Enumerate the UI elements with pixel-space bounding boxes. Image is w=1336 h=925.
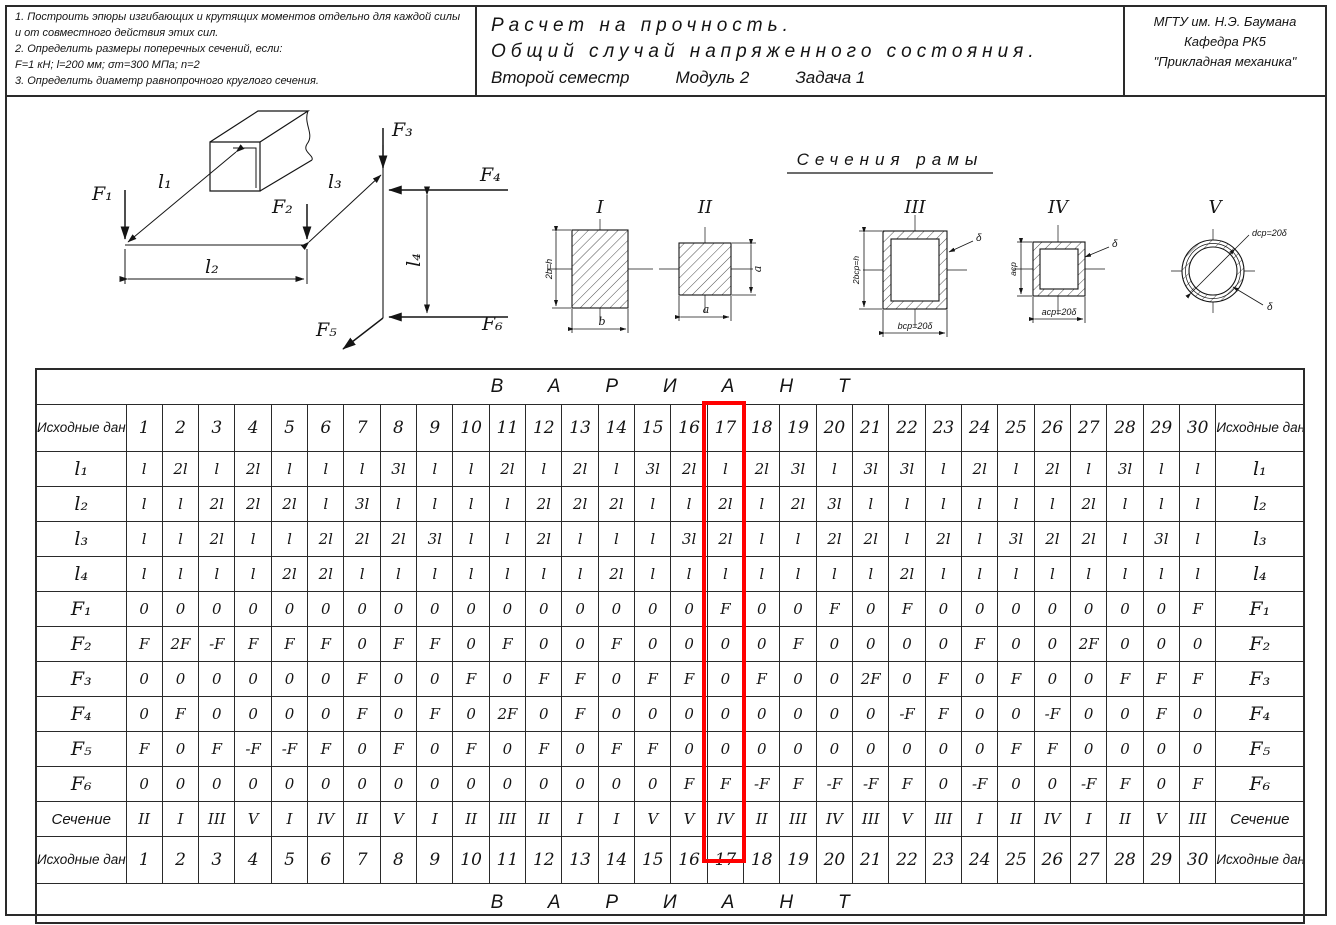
row-label: l₁: [36, 452, 126, 487]
value-cell: 0: [635, 767, 671, 802]
value-cell: I: [962, 802, 998, 837]
row-label: F₃: [36, 662, 126, 697]
value-cell: F: [744, 662, 780, 697]
task-number-label: Задача 1: [795, 68, 865, 88]
value-cell: l: [162, 487, 198, 522]
value-cell: 0: [962, 697, 998, 732]
value-cell: 0: [816, 627, 852, 662]
variant-number: 30: [1180, 837, 1216, 884]
row-label: l₄: [1216, 557, 1304, 592]
variant-number: 14: [598, 405, 634, 452]
value-cell: 2l: [162, 452, 198, 487]
department-name: Кафедра РК5: [1125, 32, 1325, 52]
value-cell: III: [489, 802, 525, 837]
value-cell: l: [1034, 557, 1070, 592]
table-row: l₁l2ll2llll3lll2ll2ll3l2ll2l3ll3l3ll2ll2…: [36, 452, 1304, 487]
value-cell: 0: [635, 592, 671, 627]
value-cell: 0: [598, 767, 634, 802]
variant-number: 27: [1071, 405, 1107, 452]
value-cell: 0: [126, 767, 162, 802]
value-cell: -F: [744, 767, 780, 802]
value-cell: F: [816, 592, 852, 627]
value-cell: 3l: [635, 452, 671, 487]
value-cell: F: [562, 662, 598, 697]
value-cell: l: [1143, 487, 1179, 522]
value-cell: 0: [162, 592, 198, 627]
section-4-dim-bottom: aср=20δ: [1042, 307, 1078, 317]
frame-labels: F₁ F₂ F₃ F₄ F₅ F₆ l₁ l₂ l₃ l₄: [91, 119, 503, 341]
variant-number: 26: [1034, 837, 1070, 884]
table-row: Исходные данные1234567891011121314151617…: [36, 405, 1304, 452]
corner-label: Исходные данные: [1216, 405, 1304, 452]
value-cell: 2l: [1034, 452, 1070, 487]
force-label-f2: F₂: [271, 196, 293, 218]
value-cell: l: [889, 487, 925, 522]
value-cell: l: [526, 452, 562, 487]
value-cell: F: [417, 697, 453, 732]
value-cell: III: [780, 802, 816, 837]
variant-number: 9: [417, 837, 453, 884]
table-row: ВАРИАНТ: [36, 369, 1304, 405]
variant-number: 13: [562, 837, 598, 884]
value-cell: l: [489, 487, 525, 522]
value-cell: II: [126, 802, 162, 837]
page-title: Расчет на прочность.: [491, 13, 1123, 39]
value-cell: F: [308, 732, 344, 767]
value-cell: 2l: [1034, 522, 1070, 557]
table-row: F₆000000000000000FF-FF-F-FF0-F00-FF0FF₆: [36, 767, 1304, 802]
variant-number: 6: [308, 837, 344, 884]
value-cell: 0: [889, 662, 925, 697]
value-cell: 0: [853, 697, 889, 732]
value-cell: 2l: [853, 522, 889, 557]
value-cell: l: [453, 452, 489, 487]
value-cell: l: [998, 487, 1034, 522]
row-label: F₆: [36, 767, 126, 802]
value-cell: 0: [853, 592, 889, 627]
table-row: F₄0F0000F0F02F0F00000000-FF00-F00F0F₄: [36, 697, 1304, 732]
value-cell: 0: [780, 732, 816, 767]
value-cell: 2l: [671, 452, 707, 487]
force-label-f3: F₃: [391, 119, 413, 141]
value-cell: I: [598, 802, 634, 837]
value-cell: l: [962, 557, 998, 592]
value-cell: F: [998, 662, 1034, 697]
force-label-f4: F₄: [479, 164, 501, 186]
row-label: F₃: [1216, 662, 1304, 697]
value-cell: 0: [998, 592, 1034, 627]
force-label-f5: F₅: [315, 319, 337, 341]
value-cell: 0: [271, 697, 307, 732]
section-5-dim-diagonal: dср=20δ: [1252, 228, 1288, 238]
value-cell: l: [671, 557, 707, 592]
value-cell: 0: [962, 732, 998, 767]
value-cell: 0: [271, 767, 307, 802]
variant-number: 15: [635, 405, 671, 452]
university-name: МГТУ им. Н.Э. Баумана: [1125, 12, 1325, 32]
variant-number: 16: [671, 405, 707, 452]
value-cell: 0: [235, 592, 271, 627]
variant-number: 10: [453, 837, 489, 884]
value-cell: V: [1143, 802, 1179, 837]
value-cell: V: [380, 802, 416, 837]
value-cell: l: [1143, 452, 1179, 487]
length-label-l1: l₁: [158, 171, 172, 193]
value-cell: 0: [1143, 767, 1179, 802]
variant-number: 25: [998, 405, 1034, 452]
variant-number: 22: [889, 405, 925, 452]
variant-number: 3: [199, 405, 235, 452]
variant-number: 5: [271, 405, 307, 452]
value-cell: 0: [1107, 732, 1143, 767]
variant-number: 26: [1034, 405, 1070, 452]
value-cell: 0: [199, 767, 235, 802]
variant-number: 18: [744, 405, 780, 452]
value-cell: 0: [744, 697, 780, 732]
value-cell: 0: [1071, 697, 1107, 732]
value-cell: 0: [1107, 592, 1143, 627]
value-cell: 0: [671, 697, 707, 732]
value-cell: -F: [1071, 767, 1107, 802]
value-cell: 0: [417, 732, 453, 767]
value-cell: l: [925, 487, 961, 522]
value-cell: 0: [162, 767, 198, 802]
variant-banner-top: ВАРИАНТ: [36, 369, 1304, 405]
value-cell: I: [417, 802, 453, 837]
course-info: Второй семестр Модуль 2 Задача 1: [491, 68, 1123, 88]
frame-diagram: F₁ F₂ F₃ F₄ F₅ F₆ l₁ l₂ l₃ l₄: [40, 98, 520, 368]
force-arrows: [125, 128, 508, 349]
value-cell: 0: [562, 732, 598, 767]
row-label: l₂: [1216, 487, 1304, 522]
value-cell: F: [1180, 592, 1216, 627]
value-cell: F: [1107, 767, 1143, 802]
value-cell: l: [271, 522, 307, 557]
value-cell: F: [598, 627, 634, 662]
value-cell: l: [598, 522, 634, 557]
value-cell: l: [853, 557, 889, 592]
value-cell: II: [453, 802, 489, 837]
value-cell: l: [1034, 487, 1070, 522]
value-cell: l: [780, 522, 816, 557]
value-cell: 0: [308, 592, 344, 627]
value-cell: 0: [199, 592, 235, 627]
variant-number: 12: [526, 405, 562, 452]
value-cell: 2l: [380, 522, 416, 557]
value-cell: 0: [1071, 732, 1107, 767]
value-cell: 0: [598, 662, 634, 697]
value-cell: l: [635, 557, 671, 592]
value-cell: II: [344, 802, 380, 837]
value-cell: F: [344, 697, 380, 732]
beam-stub: [210, 111, 312, 191]
value-cell: 0: [598, 592, 634, 627]
corner-label: Исходные данные: [36, 405, 126, 452]
value-cell: l: [562, 522, 598, 557]
value-cell: 0: [853, 732, 889, 767]
value-cell: III: [925, 802, 961, 837]
value-cell: l: [1180, 487, 1216, 522]
section-3-dim-bottom: bср=20δ: [898, 321, 934, 331]
value-cell: F: [598, 732, 634, 767]
variant-number: 8: [380, 405, 416, 452]
row-label: l₃: [36, 522, 126, 557]
value-cell: 0: [308, 697, 344, 732]
variant-number: 9: [417, 405, 453, 452]
value-cell: 0: [526, 627, 562, 662]
value-cell: l: [1143, 557, 1179, 592]
value-cell: 3l: [1107, 452, 1143, 487]
value-cell: 3l: [816, 487, 852, 522]
value-cell: F: [671, 662, 707, 697]
value-cell: F: [998, 732, 1034, 767]
value-cell: 0: [1034, 767, 1070, 802]
value-cell: 0: [489, 767, 525, 802]
value-cell: F: [344, 662, 380, 697]
value-cell: 0: [998, 697, 1034, 732]
variant-number: 29: [1143, 405, 1179, 452]
value-cell: 0: [271, 662, 307, 697]
section-4-numeral: IV: [1047, 197, 1070, 218]
row-label: F₅: [1216, 732, 1304, 767]
value-cell: 2l: [925, 522, 961, 557]
value-cell: III: [1180, 802, 1216, 837]
value-cell: IV: [707, 802, 743, 837]
variant-number: 11: [489, 837, 525, 884]
value-cell: F: [780, 767, 816, 802]
value-cell: 2l: [562, 487, 598, 522]
value-cell: 0: [126, 662, 162, 697]
value-cell: 2l: [199, 522, 235, 557]
variant-number: 23: [925, 405, 961, 452]
variant-number: 22: [889, 837, 925, 884]
sections-diagram: Сечения рамы I 2b=h b II a: [525, 135, 1320, 365]
value-cell: l: [235, 557, 271, 592]
value-cell: l: [744, 522, 780, 557]
value-cell: 0: [126, 592, 162, 627]
module-label: Модуль 2: [675, 68, 749, 88]
value-cell: 0: [1180, 732, 1216, 767]
value-cell: 2l: [889, 557, 925, 592]
value-cell: 0: [235, 662, 271, 697]
value-cell: 2l: [1071, 487, 1107, 522]
value-cell: 0: [889, 627, 925, 662]
value-cell: 0: [598, 697, 634, 732]
page-subtitle: Общий случай напряженного состояния.: [491, 39, 1123, 65]
section-5-numeral: V: [1209, 197, 1224, 218]
value-cell: 2l: [707, 487, 743, 522]
value-cell: 2l: [308, 557, 344, 592]
value-cell: 2l: [271, 557, 307, 592]
value-cell: l: [162, 557, 198, 592]
semester-label: Второй семестр: [491, 68, 629, 88]
value-cell: 0: [816, 662, 852, 697]
section-5-thickness: δ: [1267, 302, 1273, 313]
variant-number: 21: [853, 837, 889, 884]
value-cell: 0: [707, 697, 743, 732]
value-cell: -F: [271, 732, 307, 767]
length-label-l2: l₂: [205, 256, 219, 278]
value-cell: 0: [526, 592, 562, 627]
value-cell: 2l: [562, 452, 598, 487]
value-cell: -F: [1034, 697, 1070, 732]
value-cell: 2l: [235, 487, 271, 522]
variant-number: 11: [489, 405, 525, 452]
value-cell: 0: [889, 732, 925, 767]
row-label: F₅: [36, 732, 126, 767]
variant-number: 19: [780, 837, 816, 884]
value-cell: 0: [126, 697, 162, 732]
value-cell: 0: [707, 732, 743, 767]
value-cell: 2l: [962, 452, 998, 487]
value-cell: F: [1180, 767, 1216, 802]
value-cell: 0: [526, 767, 562, 802]
table-row: F₃000000F00F0FF0FF0F002F0F0F00FFFF₃: [36, 662, 1304, 697]
value-cell: -F: [962, 767, 998, 802]
value-cell: IV: [308, 802, 344, 837]
value-cell: l: [853, 487, 889, 522]
value-cell: 0: [707, 662, 743, 697]
value-cell: 2F: [489, 697, 525, 732]
value-cell: 0: [707, 627, 743, 662]
value-cell: -F: [853, 767, 889, 802]
value-cell: 2l: [235, 452, 271, 487]
variant-number: 4: [235, 837, 271, 884]
task-list: 1. Построить эпюры изгибающих и крутящих…: [7, 7, 477, 95]
value-cell: l: [271, 452, 307, 487]
variant-number: 29: [1143, 837, 1179, 884]
section-5: V dср=20δ δ: [1171, 197, 1288, 313]
value-cell: III: [199, 802, 235, 837]
value-cell: 3l: [780, 452, 816, 487]
value-cell: l: [780, 557, 816, 592]
corner-label: Исходные данные: [36, 837, 126, 884]
value-cell: 0: [1180, 627, 1216, 662]
value-cell: F: [526, 732, 562, 767]
value-cell: l: [707, 452, 743, 487]
value-cell: F: [889, 592, 925, 627]
variants-table: ВАРИАНТИсходные данные123456789101112131…: [35, 368, 1305, 924]
variant-number: 21: [853, 405, 889, 452]
value-cell: F: [126, 627, 162, 662]
value-cell: F: [1107, 662, 1143, 697]
value-cell: 0: [417, 767, 453, 802]
value-cell: l: [1107, 557, 1143, 592]
value-cell: 2l: [489, 452, 525, 487]
value-cell: 0: [380, 767, 416, 802]
worksheet-page: 1. Построить эпюры изгибающих и крутящих…: [0, 0, 1336, 925]
value-cell: 2l: [780, 487, 816, 522]
value-cell: III: [853, 802, 889, 837]
value-cell: l: [707, 557, 743, 592]
value-cell: F: [962, 627, 998, 662]
table-row: F₅F0F-F-FF0F0F0F0FF000000000FF0000F₅: [36, 732, 1304, 767]
value-cell: l: [635, 487, 671, 522]
value-cell: 0: [489, 732, 525, 767]
value-cell: -F: [889, 697, 925, 732]
value-cell: 2l: [598, 487, 634, 522]
value-cell: 0: [962, 592, 998, 627]
value-cell: F: [453, 662, 489, 697]
variant-number: 28: [1107, 405, 1143, 452]
title-block: Расчет на прочность. Общий случай напряж…: [477, 7, 1123, 95]
value-cell: F: [1034, 732, 1070, 767]
chair-name: "Прикладная механика": [1125, 52, 1325, 72]
value-cell: 0: [1143, 592, 1179, 627]
value-cell: 3l: [1143, 522, 1179, 557]
value-cell: V: [235, 802, 271, 837]
value-cell: l: [562, 557, 598, 592]
section-2: II a a: [659, 197, 764, 321]
value-cell: 0: [235, 697, 271, 732]
value-cell: l: [199, 557, 235, 592]
variant-number: 18: [744, 837, 780, 884]
value-cell: 0: [998, 767, 1034, 802]
value-cell: 0: [1071, 592, 1107, 627]
variant-number: 8: [380, 837, 416, 884]
section-2-dim-bottom: a: [703, 303, 710, 316]
variant-number: 5: [271, 837, 307, 884]
value-cell: F: [453, 732, 489, 767]
value-cell: F: [126, 732, 162, 767]
value-cell: l: [308, 452, 344, 487]
value-cell: 0: [453, 767, 489, 802]
value-cell: 2l: [199, 487, 235, 522]
value-cell: 3l: [998, 522, 1034, 557]
row-label: l₂: [36, 487, 126, 522]
value-cell: F: [925, 697, 961, 732]
value-cell: l: [126, 452, 162, 487]
value-cell: 2l: [744, 452, 780, 487]
value-cell: II: [1107, 802, 1143, 837]
value-cell: F: [1143, 697, 1179, 732]
value-cell: 0: [162, 732, 198, 767]
value-cell: F: [780, 627, 816, 662]
value-cell: 0: [526, 697, 562, 732]
value-cell: l: [1107, 487, 1143, 522]
value-cell: F: [526, 662, 562, 697]
value-cell: 0: [380, 697, 416, 732]
value-cell: 0: [417, 592, 453, 627]
value-cell: 0: [780, 592, 816, 627]
value-cell: F: [671, 767, 707, 802]
value-cell: l: [1180, 557, 1216, 592]
value-cell: 2F: [1071, 627, 1107, 662]
section-4-dim-left: aср: [1008, 262, 1018, 276]
table-row: l₄llll2l2llllllll2llllllll2llllllllll₄: [36, 557, 1304, 592]
variant-banner-bottom: ВАРИАНТ: [36, 884, 1304, 924]
section-3-dim-left: 2bср=h: [851, 256, 861, 285]
value-cell: 2l: [526, 522, 562, 557]
sections-title: Сечения рамы: [797, 150, 984, 169]
value-cell: l: [526, 557, 562, 592]
value-cell: l: [816, 452, 852, 487]
value-cell: 0: [1180, 697, 1216, 732]
value-cell: F: [162, 697, 198, 732]
variant-number: 10: [453, 405, 489, 452]
value-cell: 0: [962, 662, 998, 697]
value-cell: l: [489, 557, 525, 592]
value-cell: 0: [1071, 662, 1107, 697]
value-cell: 0: [453, 697, 489, 732]
value-cell: V: [889, 802, 925, 837]
value-cell: 0: [816, 732, 852, 767]
row-label: F₄: [36, 697, 126, 732]
section-1-dim-left: 2b=h: [544, 259, 554, 280]
value-cell: I: [271, 802, 307, 837]
value-cell: l: [1180, 452, 1216, 487]
value-cell: 0: [344, 767, 380, 802]
